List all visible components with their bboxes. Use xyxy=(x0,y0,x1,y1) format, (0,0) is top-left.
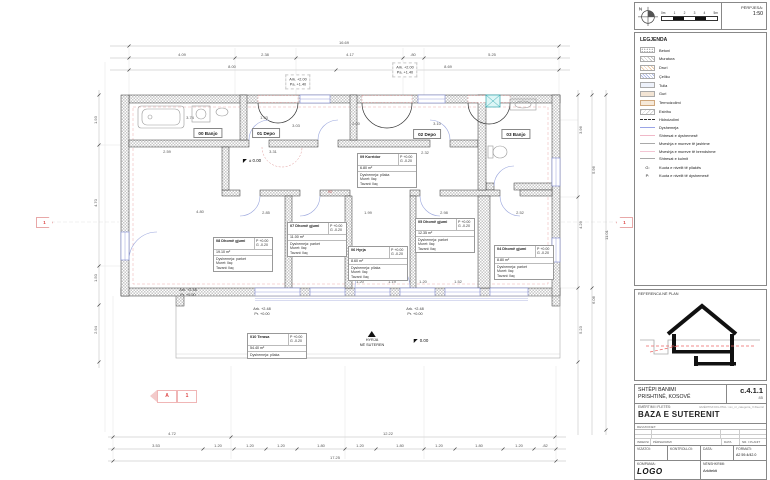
level-bottom: Pr. +0.00 xyxy=(179,293,196,298)
dimension-label: 1.99 xyxy=(364,211,372,215)
dimension-label: 12.22 xyxy=(383,432,393,436)
dimension-label: 5.25 xyxy=(488,53,496,57)
scale-tick: 2 xyxy=(684,11,686,15)
room-layer: Tavani: llaç xyxy=(497,274,551,278)
legend-note: G:Kuota e nivelit të pllakës xyxy=(640,165,761,170)
line-murb-swatch xyxy=(640,151,655,152)
room-layer: Tavani: llaç xyxy=(290,251,344,255)
level-bottom: Pr. +0.00 xyxy=(406,312,423,317)
room-info-head: 04 Dhomë gjumiP +0.00G -0.20 xyxy=(495,246,553,258)
revision-table: REVIZIONET: INDEKSIPËRSHKRIMIDATANR. I P… xyxy=(635,424,766,446)
dimension-label: 3.74 xyxy=(186,116,194,120)
room-info-head: 08 Dhomë gjumiP +0.00G -0.20 xyxy=(214,238,272,250)
line-shtresa-swatch xyxy=(640,135,655,136)
legend-item: Shtresat e dyshemesë xyxy=(640,133,761,138)
legend: LEGJENDA BetoniMuraturaDruriÇelikuTullaG… xyxy=(634,32,767,286)
company-logo: LOGO xyxy=(637,467,698,476)
entry-line2: NË SUTEREN xyxy=(360,343,384,348)
room-info-box: 04 Dhomë gjumiP +0.00G -0.208.80 m²Dyshe… xyxy=(494,245,554,280)
legend-item: Druri xyxy=(640,65,761,71)
dimension-label: 2.85 xyxy=(262,211,270,215)
room-levels: P +0.00G -0.20 xyxy=(289,334,306,345)
dimension-label: 17.25 xyxy=(330,456,340,460)
legend-list: BetoniMuraturaDruriÇelikuTullaGuriTermoi… xyxy=(640,47,761,178)
scale-bar-segments xyxy=(661,16,718,21)
digital-name-caption: EMËRTIMI DIGJITAL: xxx_nr_categoria_X.fi… xyxy=(699,405,764,409)
line-hidro-swatch xyxy=(640,119,655,120)
svg-text:N: N xyxy=(639,7,642,12)
dimension-label: 2.98 xyxy=(440,211,448,215)
dimension-label: 1.20 xyxy=(515,444,523,448)
dimension-label: 1.80 xyxy=(396,444,404,448)
title-block-project-row: SHTËPI BANIMI PRISHTINË, KOSOVË c.4.1.1 … xyxy=(635,385,766,404)
legend-note-label: Kuota e nivelit të pllakës xyxy=(659,165,701,170)
scale-caption: PËRPJESA: xyxy=(725,5,763,10)
dimension-label: 1.52 xyxy=(454,280,462,284)
dimension-label: 8.69 xyxy=(444,65,452,69)
legend-item-label: Estrihu xyxy=(659,109,671,114)
level-mark: 0.00 xyxy=(414,338,429,344)
room-name: 06 Hyrja xyxy=(349,247,390,258)
dimension-label: 4.09 xyxy=(178,53,186,57)
drawn-by-cell: VIZATOI: xyxy=(635,446,668,460)
room-level-g: G -0.20 xyxy=(400,159,415,163)
room-level-g: G -0.20 xyxy=(458,224,473,228)
scale-tick: 4 xyxy=(704,11,706,15)
level-bottom: Pr. +0.00 xyxy=(253,312,270,317)
scale-value: 1:50 xyxy=(725,11,763,17)
level-bottom: Pa. +1.40 xyxy=(289,82,306,87)
line-dysh-swatch xyxy=(640,127,655,128)
scale-ratio-box: PËRPJESA: 1:50 xyxy=(722,3,766,29)
section-arrow-icon xyxy=(150,390,157,402)
company-row: KOMPANIA: LOGO NËNSHKRIMI: Arkitekti xyxy=(635,461,766,479)
room-level-g: G -0.20 xyxy=(391,252,406,256)
section-marker-a: A 1 xyxy=(150,390,197,402)
legend-item: Mveshja e mureve të jashtme xyxy=(640,141,761,146)
dimension-label: 1.80 xyxy=(317,444,325,448)
room-info-box: 05 Dhomë gjumiP +0.00G -0.2012.35 m²Dysh… xyxy=(415,218,475,253)
room-name-label: 03 Banjo xyxy=(501,129,530,139)
dimension-label: 1.20 xyxy=(277,444,285,448)
room-levels: P +0.00G -0.20 xyxy=(457,219,474,230)
dimension-label: 1.20 xyxy=(356,444,364,448)
dimension-label: 4.17 xyxy=(346,53,354,57)
room-name: 010 Terasa xyxy=(248,334,289,345)
dimension-label: 4.70 xyxy=(94,199,98,207)
dimension-label: 2.38 xyxy=(261,53,269,57)
signature-value: Arkitekti xyxy=(703,468,764,473)
entry-triangle-icon xyxy=(368,331,376,337)
guri-swatch xyxy=(640,91,655,97)
revision-header-cell: DATA xyxy=(722,439,740,445)
druri-swatch xyxy=(640,65,655,71)
credits-row: VIZATOI: KONTROLLOI: DATA: FORMATI: A2 5… xyxy=(635,446,766,461)
room-name: 05 Dhomë gjumi xyxy=(416,219,457,230)
dimension-label: 4.80 xyxy=(196,210,204,214)
celiku-swatch xyxy=(640,73,655,79)
room-name: 04 Dhomë gjumi xyxy=(495,246,536,257)
revision-header-cell: INDEKSI xyxy=(635,439,651,445)
legend-item: Tulla xyxy=(640,82,761,88)
level-mark: ± 0.00 xyxy=(243,158,261,164)
legend-item: Guri xyxy=(640,91,761,97)
room-layer: Tavani: llaç xyxy=(351,275,405,279)
legend-item-label: Termoizolimi xyxy=(659,100,681,105)
legend-item-label: Muratura xyxy=(659,56,675,61)
room-levels: P +0.00G -0.20 xyxy=(399,154,416,165)
room-info-head: 06 HyrjaP +0.00G -0.20 xyxy=(349,247,407,259)
legend-item: Termoizolimi xyxy=(640,100,761,106)
scale-bar-area: N 0m12345m xyxy=(635,3,722,29)
dimension-label: 4.29 xyxy=(579,221,583,229)
room-info-box: 07 Dhomë gjumiP +0.00G -0.2011.00 m²Dysh… xyxy=(287,222,347,257)
legend-item-label: Shtresat e kulmit xyxy=(659,156,688,161)
sheet-title: BAZA E SUTERENIT xyxy=(638,410,763,419)
room-name-label: 00 Banjo xyxy=(193,128,222,138)
room-layers: Dyshemeja: pllakaMuret: llaçTavani: llaç xyxy=(349,265,407,280)
dimension-label: 2.52 xyxy=(516,211,524,215)
room-layer: Tavani: llaç xyxy=(360,182,414,186)
level-mark-icon xyxy=(414,339,418,343)
dimension-label: .80 xyxy=(410,53,416,57)
legend-note: P:Kuota e nivelit të dyshemesë xyxy=(640,173,761,178)
legend-item-label: Betoni xyxy=(659,48,670,53)
date-cell: DATA: xyxy=(701,446,734,460)
revision-header-cell: PËRSHKRIMI xyxy=(651,439,722,445)
room-level-g: G -0.20 xyxy=(256,243,271,247)
dimension-label: 8.00 xyxy=(228,65,236,69)
dimension-label: 1.93 xyxy=(94,116,98,124)
room-layer: Dyshemeja: pllaka xyxy=(250,353,304,357)
legend-note-key: G: xyxy=(640,165,655,170)
dimension-label: 3.96 xyxy=(579,126,583,134)
format-caption: FORMATI: xyxy=(736,447,764,451)
signature-caption: NËNSHKRIMI: xyxy=(703,462,764,466)
scale-tick-labels: 0m12345m xyxy=(661,11,718,15)
room-layers: Dyshemeja: pllaka xyxy=(248,352,306,358)
level-value: ± 0.00 xyxy=(249,158,261,164)
room-info-head: 09 KorridorP +0.00G -0.20 xyxy=(358,154,416,166)
room-info-box: 08 Dhomë gjumiP +0.00G -0.2019.10 m²Dysh… xyxy=(213,237,273,272)
legend-item-label: Guri xyxy=(659,91,666,96)
room-layers: Dyshemeja: parketMuret: llaçTavani: llaç xyxy=(288,241,346,256)
room-layers: Dyshemeja: parketMuret: llaçTavani: llaç xyxy=(495,264,553,279)
room-name-label: 01 Depo xyxy=(252,128,280,138)
legend-item: Betoni xyxy=(640,47,761,53)
line-kulm-swatch xyxy=(640,158,655,159)
format-value: A2 59.4/42.0 xyxy=(736,453,764,457)
legend-item-label: Dyshemeja xyxy=(659,125,678,130)
room-info-head: 05 Dhomë gjumiP +0.00G -0.20 xyxy=(416,219,474,231)
dimension-label: 1.80 xyxy=(475,444,483,448)
dimension-label: 3.31 xyxy=(269,150,277,154)
checked-by-cell: KONTROLLOI: xyxy=(668,446,701,460)
room-levels: P +0.00G -0.20 xyxy=(329,223,346,234)
dimension-label: 6.06 xyxy=(592,296,596,304)
level-mark-icon xyxy=(243,159,247,163)
legend-item-label: Mveshja e mureve të brendshme xyxy=(659,149,716,154)
legend-item-label: Druri xyxy=(659,65,667,70)
room-level-g: G -0.20 xyxy=(290,339,305,343)
dimension-label: .82 xyxy=(542,444,548,448)
dimension-label: 1.20 xyxy=(214,444,222,448)
section-number: 1 xyxy=(177,390,197,403)
legend-item: Mveshja e mureve të brendshme xyxy=(640,149,761,154)
room-level-g: G -0.20 xyxy=(330,228,345,232)
dimension-label: 5.23 xyxy=(579,326,583,334)
dimension-label: 5.96 xyxy=(592,166,596,174)
dimension-label: 1.93 xyxy=(260,116,268,120)
section-letter: A xyxy=(157,390,177,403)
dimension-label: 1.20 xyxy=(419,280,427,284)
dimension-label: 3.03 xyxy=(292,124,300,128)
legend-item: Hidroizolimi xyxy=(640,117,761,122)
dimension-label: 1.20 xyxy=(246,444,254,448)
legend-title: LEGJENDA xyxy=(640,37,761,43)
tulla-swatch xyxy=(640,82,655,88)
axis-marker-left: 1 xyxy=(36,217,53,228)
legend-item-label: Tulla xyxy=(659,83,667,88)
dimension-label: 11.01 xyxy=(605,230,609,240)
scale-bar: 0m12345m xyxy=(661,11,718,21)
legend-item-label: Hidroizolimi xyxy=(659,117,679,122)
betoni-swatch xyxy=(640,47,655,53)
scale-tick: 5m xyxy=(714,11,718,15)
company-cell: KOMPANIA: LOGO xyxy=(635,461,701,479)
dimension-label: 3.53 xyxy=(152,444,160,448)
dimension-label: 1.20 xyxy=(435,444,443,448)
dimension-label: 1.50 xyxy=(94,274,98,282)
north-scale-box: N 0m12345m PËRPJESA: 1:50 xyxy=(634,2,767,30)
legend-item: Shtresat e kulmit xyxy=(640,156,761,161)
level-top: Ark. +2.00 xyxy=(289,77,306,82)
dimension-label: 2.59 xyxy=(163,150,171,154)
line-murj-swatch xyxy=(640,143,655,144)
legend-item-label: Mveshja e mureve të jashtme xyxy=(659,141,710,146)
legend-item: Estrihu xyxy=(640,109,761,115)
sheet-code-sub: 85 xyxy=(730,395,763,400)
section-reference-icon xyxy=(638,296,764,376)
dimension-label: 4.72 xyxy=(168,432,176,436)
muratura-swatch xyxy=(640,56,655,62)
level-bottom: Pa. +1.40 xyxy=(396,70,413,75)
room-levels: P +0.00G -0.20 xyxy=(390,247,407,258)
level-top: Ark. +2.00 xyxy=(396,65,413,70)
room-layer: Tavani: llaç xyxy=(418,247,472,251)
entry-marker: HYRJANË SUTEREN xyxy=(360,331,384,348)
plan-annotations: A 1 1 1 16.694.092.384.17.805.258.008.69… xyxy=(0,0,636,480)
room-layers: Dyshemeja: pllakaMuret: llaçTavani: llaç xyxy=(358,172,416,187)
legend-item-label: Çeliku xyxy=(659,74,670,79)
drawing-sheet: A 1 1 1 16.694.092.384.17.805.258.008.69… xyxy=(0,0,770,480)
legend-note-key: P: xyxy=(640,173,655,178)
room-name: 09 Korridor xyxy=(358,154,399,165)
room-levels: P +0.00G -0.20 xyxy=(536,246,553,257)
legend-item-label: Shtresat e dyshemesë xyxy=(659,133,698,138)
level-value: 0.00 xyxy=(420,338,429,344)
level-pair: Ark. +2.48Pr. +0.00 xyxy=(179,288,196,298)
sheet-code: c.4.1.1 xyxy=(730,386,763,395)
room-level-g: G -0.20 xyxy=(537,251,552,255)
room-name: 08 Dhomë gjumi xyxy=(214,238,255,249)
legend-item: Dyshemeja xyxy=(640,125,761,130)
sheet-title-row: EMËRTIMI I FLETËS: EMËRTIMI DIGJITAL: xx… xyxy=(635,404,766,424)
dimension-label: 90 xyxy=(328,190,332,194)
scale-tick: 3 xyxy=(694,11,696,15)
scale-tick: 0m xyxy=(661,11,665,15)
room-info-box: 010 TerasaP +0.00G -0.2054.40 m²Dyshemej… xyxy=(247,333,307,359)
revision-header-cell: NR. I PLANIT xyxy=(740,439,766,445)
room-info-box: 09 KorridorP +0.00G -0.206.80 m²Dyshemej… xyxy=(357,153,417,188)
title-block: SHTËPI BANIMI PRISHTINË, KOSOVË c.4.1.1 … xyxy=(634,384,767,480)
reference-in-plan: REFERENCA NË PLAN xyxy=(634,289,767,381)
room-layers: Dyshemeja: parketMuret: llaçTavani: llaç xyxy=(416,237,474,252)
axis-marker-right: 1 xyxy=(616,217,633,228)
room-name-label: 02 Depo xyxy=(413,129,441,139)
dimension-label: 3.10 xyxy=(433,122,441,126)
room-info-head: 07 Dhomë gjumiP +0.00G -0.20 xyxy=(288,223,346,235)
estrihu-swatch xyxy=(640,109,655,115)
dimension-label: 16.69 xyxy=(339,41,349,45)
north-arrow-icon: N xyxy=(638,5,658,27)
room-layer: Tavani: llaç xyxy=(216,266,270,270)
legend-item: Çeliku xyxy=(640,73,761,79)
room-levels: P +0.00G -0.20 xyxy=(255,238,272,249)
project-name: SHTËPI BANIMI xyxy=(638,387,723,394)
format-cell: FORMATI: A2 59.4/42.0 xyxy=(734,446,766,460)
room-layers: Dyshemeja: parketMuret: llaçTavani: llaç xyxy=(214,256,272,271)
project-location: PRISHTINË, KOSOVË xyxy=(638,394,723,401)
company-caption: KOMPANIA: xyxy=(637,462,698,466)
level-pair: Ark. +2.00Pa. +1.40 xyxy=(392,62,417,77)
legend-item: Muratura xyxy=(640,56,761,62)
legend-note-label: Kuota e nivelit të dyshemesë xyxy=(659,173,709,178)
signature-cell: NËNSHKRIMI: Arkitekti xyxy=(701,461,766,479)
dimension-label: 2.00 xyxy=(352,122,360,126)
dimension-label: 2.94 xyxy=(94,326,98,334)
termo-swatch xyxy=(640,100,655,106)
scale-tick: 1 xyxy=(674,11,676,15)
room-info-box: 06 HyrjaP +0.00G -0.208.60 m²Dyshemeja: … xyxy=(348,246,408,281)
revision-header-row: INDEKSIPËRSHKRIMIDATANR. I PLANIT xyxy=(635,439,766,445)
room-info-head: 010 TerasaP +0.00G -0.20 xyxy=(248,334,306,346)
side-panel: N 0m12345m PËRPJESA: 1:50 LEGJENDA Beton… xyxy=(634,2,767,480)
level-pair: Ark. +2.48Pr. +0.00 xyxy=(406,307,423,317)
room-name: 07 Dhomë gjumi xyxy=(288,223,329,234)
dimension-label: 2.32 xyxy=(421,151,429,155)
level-pair: Ark. +2.00Pa. +1.40 xyxy=(285,74,310,89)
level-pair: Ark. +2.48Pr. +0.00 xyxy=(253,307,270,317)
